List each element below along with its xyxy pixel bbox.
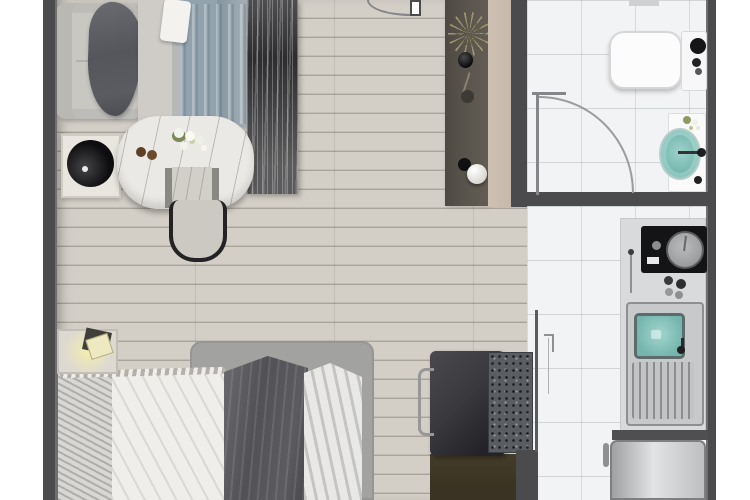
kitchen	[0, 0, 750, 500]
fridge	[610, 440, 706, 500]
small-burner	[652, 241, 661, 250]
cooktop-control	[647, 257, 659, 264]
fridge-handle	[603, 443, 609, 467]
control-knob	[676, 279, 686, 289]
floorplan	[0, 0, 750, 500]
sink-highlight	[651, 330, 661, 339]
counter-edge-dot	[628, 249, 634, 255]
sink-faucet	[677, 346, 685, 354]
drainboard	[632, 362, 694, 419]
fridge-frame	[612, 430, 708, 440]
control-knob	[664, 276, 673, 285]
control-knob	[675, 291, 683, 299]
control-knob	[665, 288, 673, 296]
counter-edge-line	[630, 251, 632, 293]
